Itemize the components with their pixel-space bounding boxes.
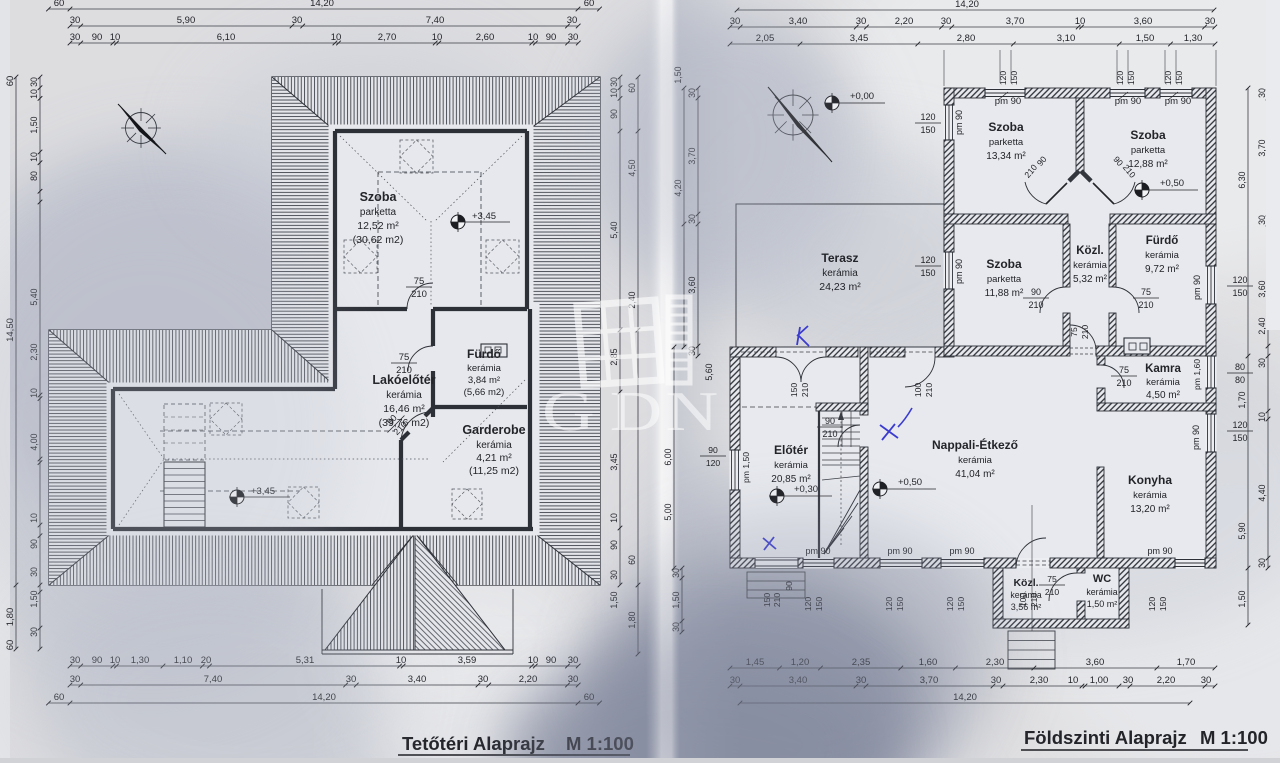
- svg-text:210: 210: [1080, 325, 1090, 340]
- svg-text:3,84 m²: 3,84 m²: [468, 375, 500, 386]
- svg-text:2,40: 2,40: [1257, 317, 1267, 334]
- svg-text:12,88 m²: 12,88 m²: [1128, 159, 1168, 170]
- svg-text:1,70: 1,70: [1237, 391, 1247, 408]
- svg-text:75: 75: [399, 352, 410, 363]
- svg-text:9,72 m²: 9,72 m²: [1145, 264, 1180, 275]
- svg-text:10: 10: [609, 513, 619, 523]
- svg-text:30: 30: [1123, 675, 1134, 686]
- svg-text:+0,50: +0,50: [1160, 178, 1184, 189]
- svg-text:G: G: [542, 381, 595, 443]
- svg-text:90: 90: [546, 655, 557, 666]
- svg-text:3,59: 3,59: [458, 655, 477, 666]
- svg-text:90: 90: [708, 445, 718, 455]
- svg-text:5,32 m²: 5,32 m²: [1073, 274, 1108, 285]
- svg-text:3,70: 3,70: [1006, 16, 1025, 27]
- svg-text:150: 150: [1232, 433, 1247, 443]
- svg-text:pm 90: pm 90: [954, 110, 964, 135]
- svg-text:60: 60: [584, 0, 595, 9]
- svg-text:150: 150: [920, 125, 935, 135]
- svg-text:150: 150: [789, 383, 799, 398]
- svg-text:kerámia: kerámia: [1073, 260, 1108, 271]
- svg-text:(11,25 m2): (11,25 m2): [469, 465, 519, 477]
- svg-text:pm 1,50: pm 1,50: [741, 452, 751, 483]
- svg-text:Fürdő: Fürdő: [1146, 235, 1179, 247]
- svg-text:kerámia: kerámia: [958, 455, 993, 466]
- svg-text:Terasz: Terasz: [821, 251, 858, 265]
- svg-text:75: 75: [1069, 327, 1079, 337]
- svg-text:14,20: 14,20: [955, 0, 979, 10]
- svg-text:30: 30: [70, 32, 81, 43]
- svg-text:11,88 m²: 11,88 m²: [985, 288, 1024, 299]
- svg-text:13,20 m²: 13,20 m²: [1130, 504, 1170, 515]
- svg-text:10: 10: [528, 655, 539, 666]
- svg-text:+0,30: +0,30: [794, 484, 818, 495]
- svg-text:kerámia: kerámia: [386, 390, 422, 401]
- svg-text:90: 90: [1031, 287, 1041, 297]
- svg-text:1,30: 1,30: [1184, 33, 1203, 44]
- svg-text:150: 150: [1174, 71, 1184, 86]
- svg-text:kerámia: kerámia: [774, 460, 809, 471]
- svg-text:(5,66 m2): (5,66 m2): [464, 387, 505, 398]
- svg-text:12,52 m²: 12,52 m²: [357, 220, 399, 232]
- svg-text:10: 10: [528, 32, 539, 43]
- svg-text:pm 90: pm 90: [1165, 96, 1191, 107]
- svg-text:30: 30: [1201, 675, 1212, 686]
- svg-text:120: 120: [1232, 275, 1247, 285]
- svg-text:90: 90: [825, 416, 835, 426]
- svg-text:90: 90: [92, 32, 103, 43]
- svg-text:parketta: parketta: [989, 137, 1024, 148]
- svg-text:parketta: parketta: [1131, 145, 1166, 156]
- svg-text:3,60: 3,60: [1086, 657, 1105, 668]
- svg-text:1,50 m²: 1,50 m²: [1087, 599, 1118, 609]
- svg-text:+0,50: +0,50: [898, 477, 922, 488]
- svg-text:Szoba: Szoba: [988, 120, 1024, 134]
- svg-text:30: 30: [941, 16, 952, 27]
- svg-text:3,60: 3,60: [1257, 280, 1267, 297]
- svg-text:kerámia: kerámia: [1146, 377, 1181, 388]
- svg-text:41,04 m²: 41,04 m²: [955, 469, 995, 480]
- svg-text:kerámia: kerámia: [1010, 590, 1041, 600]
- svg-text:100: 100: [913, 383, 923, 398]
- svg-text:10: 10: [432, 32, 443, 43]
- svg-text:30: 30: [856, 16, 867, 27]
- svg-text:150: 150: [1232, 288, 1247, 298]
- svg-text:120: 120: [920, 112, 935, 122]
- svg-text:1,00: 1,00: [1090, 675, 1109, 686]
- svg-text:10: 10: [1068, 675, 1079, 686]
- svg-text:5,00: 5,00: [663, 503, 673, 520]
- svg-text:WC: WC: [1093, 573, 1111, 585]
- svg-text:7,40: 7,40: [426, 15, 445, 26]
- svg-text:Garderobe: Garderobe: [462, 423, 525, 437]
- svg-text:1,50: 1,50: [1136, 33, 1155, 44]
- svg-text:kerámia: kerámia: [822, 268, 858, 279]
- svg-text:30: 30: [478, 674, 489, 685]
- svg-text:120: 120: [920, 255, 935, 265]
- svg-text:pm 90: pm 90: [1192, 275, 1202, 300]
- svg-text:210: 210: [1028, 300, 1043, 310]
- svg-text:+3,45: +3,45: [472, 211, 496, 222]
- svg-text:pm 90: pm 90: [1191, 425, 1201, 450]
- svg-text:2,60: 2,60: [476, 32, 495, 43]
- svg-text:80: 80: [29, 171, 39, 181]
- svg-text:75: 75: [1119, 365, 1129, 375]
- svg-text:4,50 m²: 4,50 m²: [1146, 390, 1181, 401]
- svg-text:120: 120: [1147, 597, 1157, 612]
- svg-text:10: 10: [29, 152, 39, 162]
- svg-text:210: 210: [822, 429, 837, 439]
- svg-text:10: 10: [1075, 16, 1086, 27]
- svg-text:kerámia: kerámia: [476, 440, 512, 451]
- svg-text:3,45: 3,45: [850, 33, 869, 44]
- svg-text:4,21 m²: 4,21 m²: [476, 452, 512, 464]
- svg-text:2,20: 2,20: [1157, 675, 1176, 686]
- svg-text:2,70: 2,70: [378, 32, 397, 43]
- svg-text:(39,76 m2): (39,76 m2): [379, 417, 430, 429]
- svg-text:pm 90: pm 90: [949, 546, 974, 556]
- svg-text:30: 30: [1257, 215, 1267, 225]
- svg-text:(30,62 m2): (30,62 m2): [353, 234, 404, 246]
- svg-text:24,23 m²: 24,23 m²: [819, 281, 861, 293]
- svg-text:80: 80: [1235, 375, 1245, 385]
- svg-text:Földszinti Alaprajz: Földszinti Alaprajz: [1024, 727, 1187, 748]
- svg-text:1,80: 1,80: [5, 608, 16, 627]
- svg-text:Közl.: Közl.: [1076, 245, 1103, 257]
- svg-text:210: 210: [1045, 587, 1060, 597]
- svg-text:10: 10: [396, 655, 407, 666]
- svg-text:2,30: 2,30: [1030, 675, 1049, 686]
- svg-text:210: 210: [1138, 300, 1153, 310]
- svg-text:Közl.: Közl.: [1013, 577, 1038, 589]
- svg-text:3,70: 3,70: [1257, 139, 1267, 156]
- svg-text:pm 90: pm 90: [954, 259, 964, 284]
- svg-text:30: 30: [609, 570, 619, 580]
- svg-text:90: 90: [546, 32, 557, 43]
- svg-text:150: 150: [1009, 71, 1019, 86]
- svg-text:2,80: 2,80: [957, 33, 976, 44]
- svg-text:120: 120: [998, 71, 1008, 86]
- svg-text:pm 1,60: pm 1,60: [1192, 359, 1202, 390]
- svg-text:6,30: 6,30: [1237, 171, 1247, 188]
- svg-text:pm 90: pm 90: [1147, 546, 1172, 556]
- svg-text:3,40: 3,40: [408, 674, 427, 685]
- svg-text:2,20: 2,20: [519, 674, 538, 685]
- svg-text:Kamra: Kamra: [1145, 363, 1181, 375]
- svg-text:Fürdő: Fürdő: [467, 347, 501, 361]
- svg-text:210: 210: [1116, 378, 1131, 388]
- svg-text:pm 90: pm 90: [995, 96, 1021, 107]
- svg-text:120: 120: [1163, 71, 1173, 86]
- svg-text:13,34 m²: 13,34 m²: [986, 151, 1026, 162]
- svg-text:30: 30: [567, 15, 578, 26]
- svg-text:Nappali-Étkező: Nappali-Étkező: [932, 437, 1018, 452]
- svg-text:3,60: 3,60: [1134, 16, 1153, 27]
- svg-text:pm 90: pm 90: [1115, 96, 1141, 107]
- svg-text:N: N: [666, 381, 719, 443]
- svg-text:210: 210: [411, 289, 427, 300]
- svg-text:150: 150: [920, 268, 935, 278]
- svg-text:Előtér: Előtér: [774, 443, 808, 457]
- svg-text:kerámia: kerámia: [1086, 587, 1117, 597]
- svg-text:Lakóelőtér: Lakóelőtér: [372, 373, 435, 387]
- svg-text:16,46 m²: 16,46 m²: [383, 403, 425, 415]
- svg-text:Szoba: Szoba: [360, 190, 398, 204]
- svg-text:6,00: 6,00: [663, 448, 673, 465]
- svg-text:1,50: 1,50: [1237, 590, 1247, 607]
- svg-text:120: 120: [706, 458, 721, 468]
- svg-text:150: 150: [1158, 597, 1168, 612]
- svg-text:30: 30: [29, 77, 39, 87]
- svg-text:kerámia: kerámia: [1133, 490, 1168, 501]
- svg-text:M 1:100: M 1:100: [1200, 727, 1268, 748]
- svg-text:60: 60: [5, 640, 16, 651]
- svg-text:3,45: 3,45: [609, 453, 619, 470]
- svg-text:120: 120: [1115, 71, 1125, 86]
- svg-text:30: 30: [568, 32, 579, 43]
- svg-text:Szoba: Szoba: [1130, 128, 1166, 142]
- svg-text:14,20: 14,20: [310, 0, 334, 9]
- svg-text:1,50: 1,50: [29, 116, 39, 133]
- svg-text:75: 75: [1047, 574, 1057, 584]
- svg-text:75: 75: [414, 276, 425, 287]
- svg-text:10: 10: [29, 89, 39, 99]
- svg-text:kerámia: kerámia: [467, 363, 502, 374]
- svg-text:30: 30: [1205, 16, 1216, 27]
- svg-text:75: 75: [1141, 287, 1151, 297]
- svg-text:6,10: 6,10: [217, 32, 236, 43]
- svg-text:10: 10: [1257, 412, 1267, 422]
- svg-text:kerámia: kerámia: [1145, 250, 1180, 261]
- svg-text:150: 150: [1126, 71, 1136, 86]
- svg-text:Szoba: Szoba: [986, 257, 1022, 271]
- svg-text:4,40: 4,40: [1257, 484, 1267, 501]
- svg-text:3,10: 3,10: [1057, 33, 1076, 44]
- svg-text:30: 30: [70, 15, 81, 26]
- svg-text:5,90: 5,90: [1237, 522, 1247, 539]
- svg-text:parketta: parketta: [987, 274, 1022, 285]
- svg-text:5,60: 5,60: [704, 363, 714, 380]
- svg-text:1,70: 1,70: [1177, 657, 1196, 668]
- svg-text:10: 10: [110, 32, 121, 43]
- svg-text:30: 30: [29, 627, 39, 637]
- svg-text:60: 60: [627, 555, 637, 565]
- svg-text:120: 120: [1232, 420, 1247, 430]
- svg-text:80: 80: [1235, 362, 1245, 372]
- svg-text:210: 210: [800, 383, 810, 398]
- svg-text:2,20: 2,20: [895, 16, 914, 27]
- svg-text:30: 30: [1257, 358, 1267, 368]
- svg-text:5,90: 5,90: [177, 15, 196, 26]
- svg-text:Konyha: Konyha: [1128, 473, 1172, 487]
- svg-text:+0,00: +0,00: [850, 91, 874, 102]
- svg-text:10: 10: [331, 32, 342, 43]
- svg-text:parketta: parketta: [360, 207, 397, 218]
- svg-text:30: 30: [1257, 558, 1267, 568]
- svg-text:60: 60: [5, 76, 16, 87]
- svg-text:30: 30: [292, 15, 303, 26]
- svg-text:3,60: 3,60: [687, 276, 697, 293]
- svg-text:3,56 m²: 3,56 m²: [1011, 602, 1042, 612]
- svg-text:90: 90: [609, 540, 619, 550]
- svg-text:D: D: [610, 381, 663, 443]
- svg-text:3,40: 3,40: [789, 16, 808, 27]
- svg-text:210: 210: [924, 383, 934, 398]
- svg-text:30: 30: [1257, 88, 1267, 98]
- svg-text:60: 60: [54, 0, 65, 9]
